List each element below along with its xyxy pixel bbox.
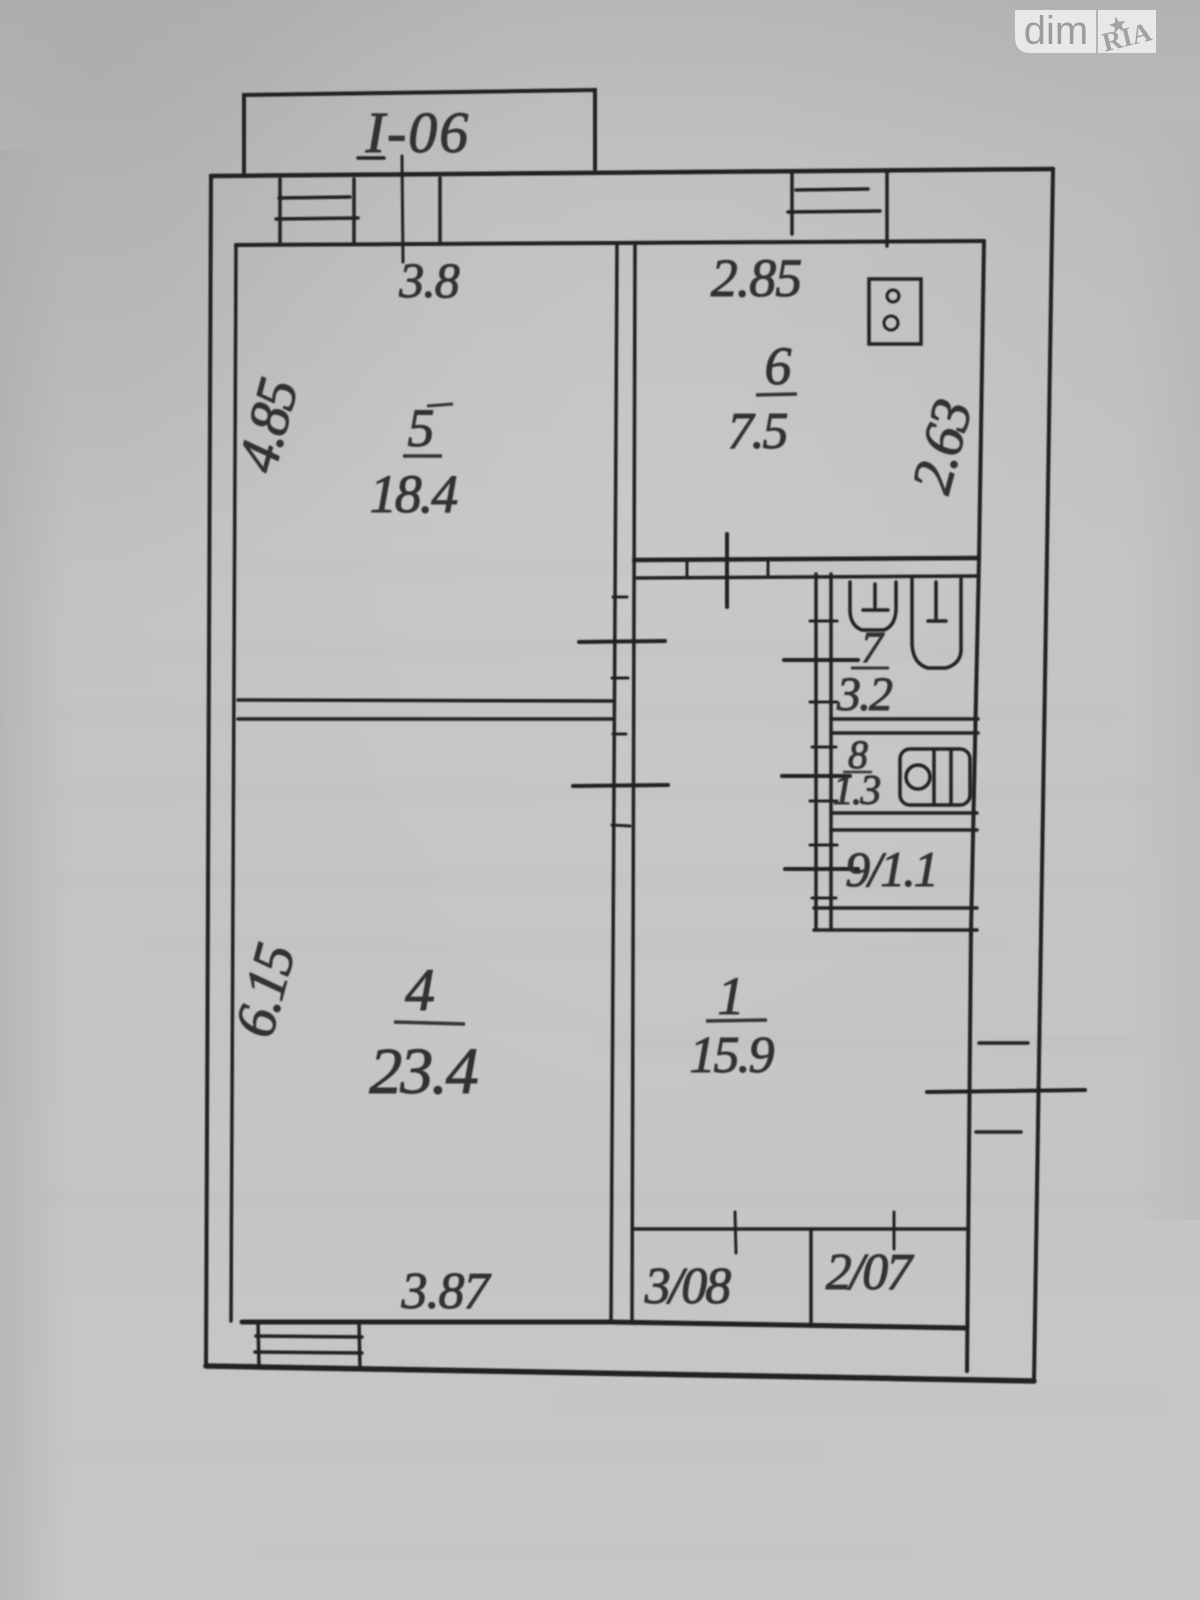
svg-text:1.3: 1.3 (833, 768, 881, 814)
svg-text:1: 1 (718, 966, 745, 1026)
svg-text:7: 7 (861, 623, 885, 672)
svg-text:18.4: 18.4 (370, 464, 458, 524)
svg-text:4: 4 (405, 957, 435, 1023)
svg-text:I-06: I-06 (365, 100, 471, 165)
svg-text:3.8: 3.8 (398, 252, 460, 308)
svg-text:3/08: 3/08 (644, 1258, 731, 1315)
svg-text:2.85: 2.85 (711, 248, 802, 308)
svg-text:2/07: 2/07 (826, 1244, 914, 1301)
svg-text:7.5: 7.5 (728, 403, 788, 460)
svg-text:3.2: 3.2 (836, 668, 892, 721)
svg-text:6: 6 (765, 336, 792, 396)
svg-text:9/1.1: 9/1.1 (845, 841, 936, 897)
svg-text:15.9: 15.9 (690, 1027, 775, 1084)
svg-text:dim: dim (1024, 9, 1088, 53)
svg-text:23.4: 23.4 (369, 1035, 478, 1108)
svg-text:3.87: 3.87 (401, 1263, 492, 1320)
